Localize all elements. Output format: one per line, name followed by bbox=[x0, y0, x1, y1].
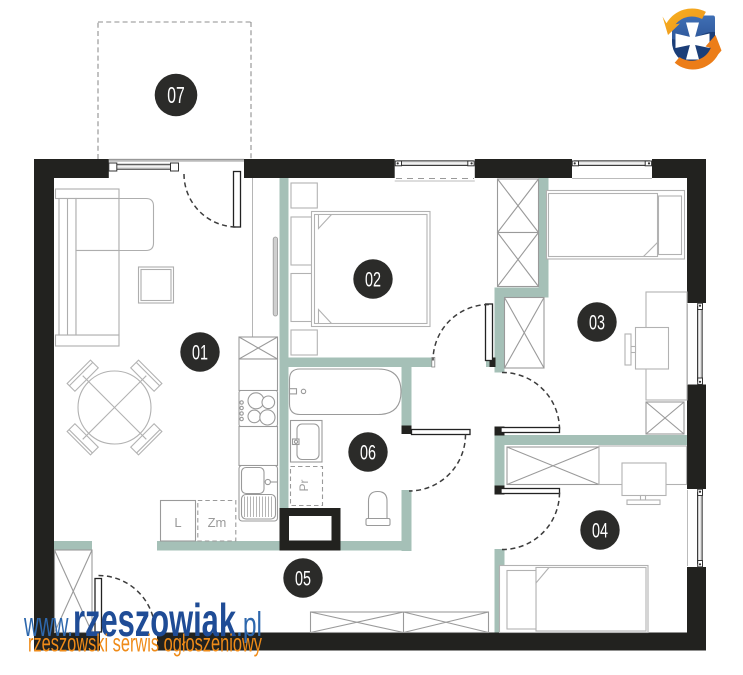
svg-text:07: 07 bbox=[167, 82, 185, 108]
svg-text:01: 01 bbox=[192, 342, 208, 365]
svg-text:05: 05 bbox=[295, 568, 311, 591]
svg-text:L: L bbox=[174, 515, 181, 530]
svg-text:rzeszowski serwis ogłoszeniowy: rzeszowski serwis ogłoszeniowy bbox=[28, 630, 262, 658]
svg-text:Pr: Pr bbox=[297, 479, 311, 491]
svg-text:02: 02 bbox=[365, 269, 381, 292]
svg-text:Zm: Zm bbox=[208, 515, 227, 530]
svg-text:04: 04 bbox=[592, 520, 608, 543]
svg-text:06: 06 bbox=[360, 442, 376, 465]
svg-text:03: 03 bbox=[589, 312, 605, 335]
